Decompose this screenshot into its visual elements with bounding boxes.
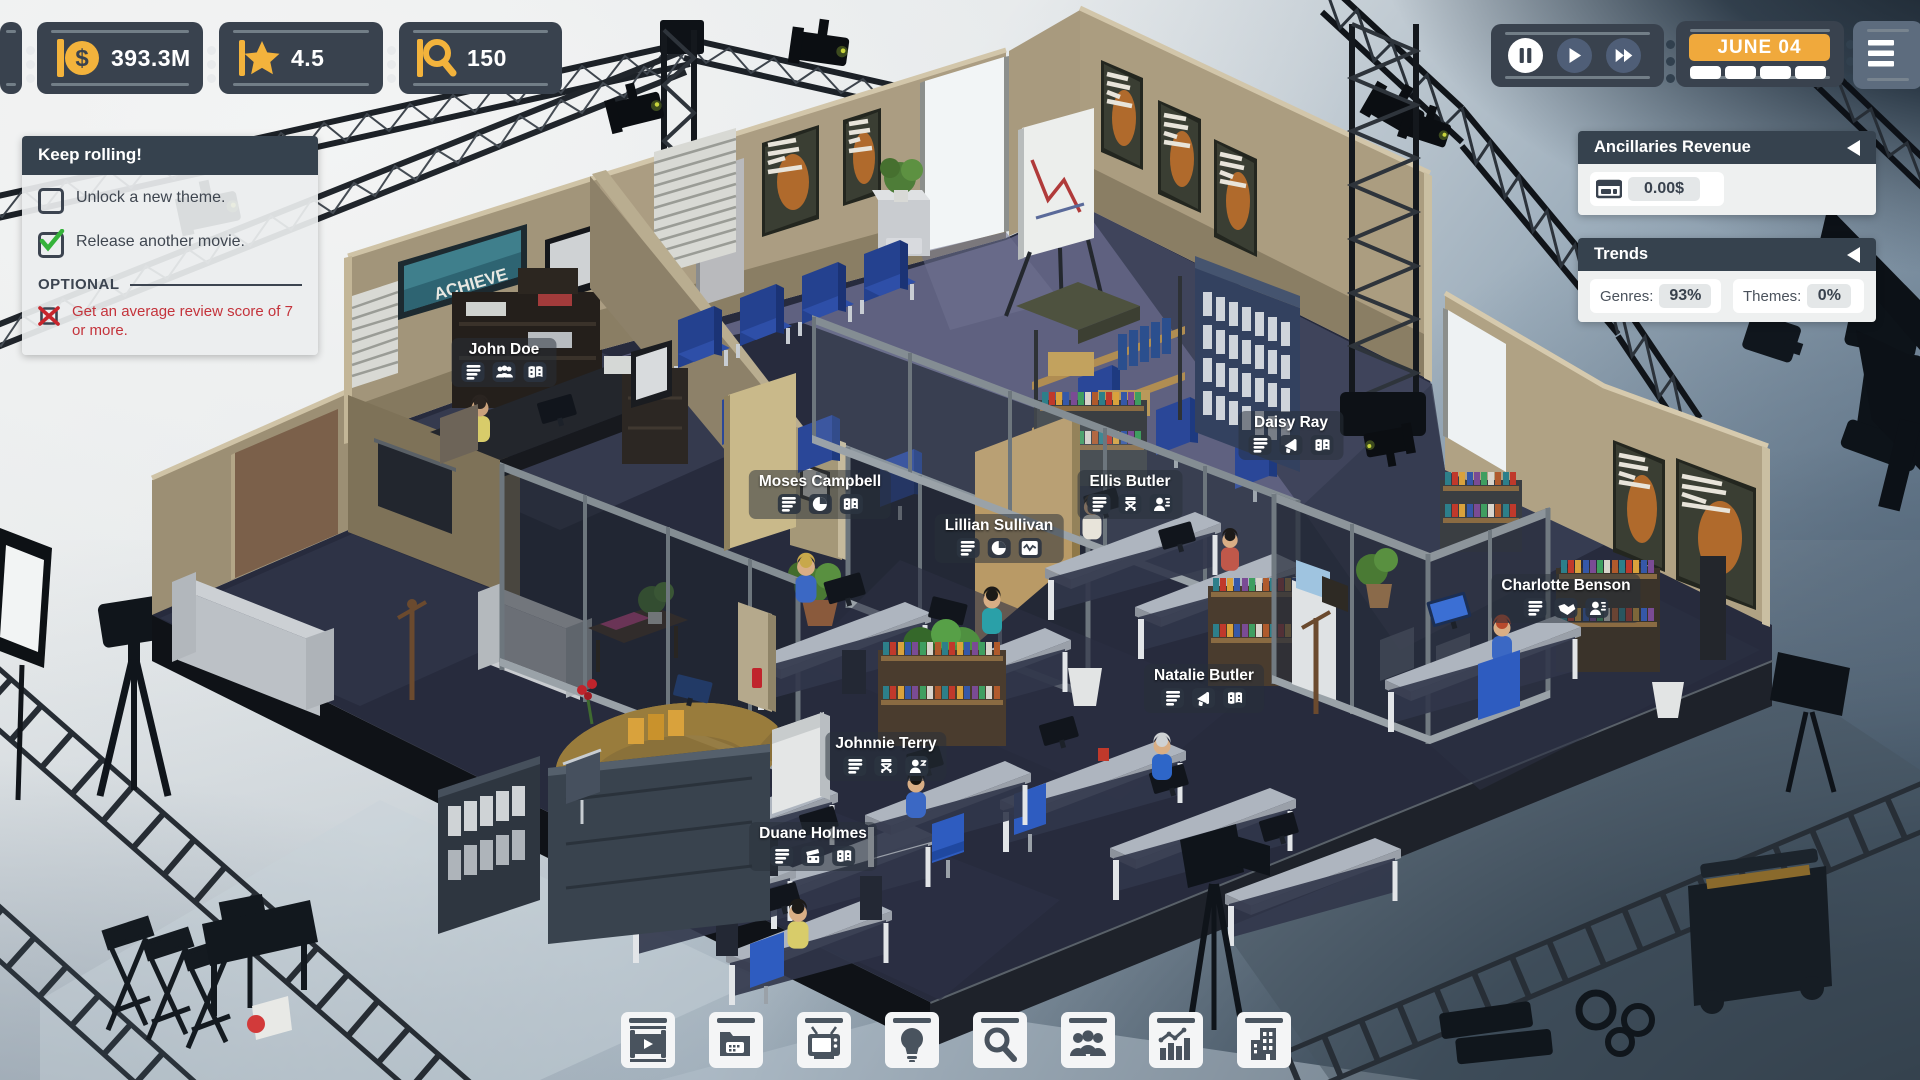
svg-text:$: $ xyxy=(75,45,89,72)
